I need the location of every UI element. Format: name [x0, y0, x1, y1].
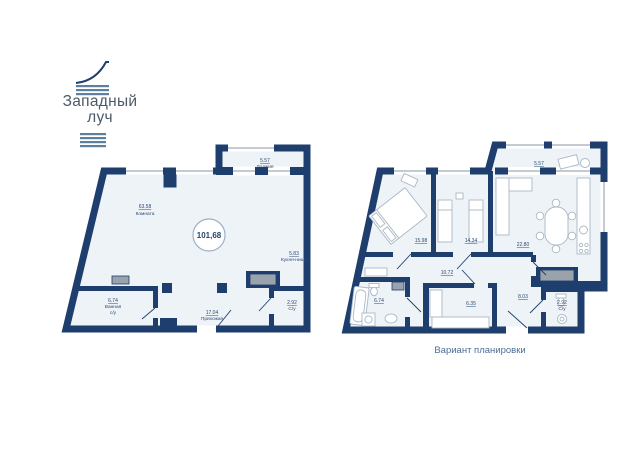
- logo-title-line2: луч: [40, 110, 160, 126]
- storage-area: 6.35: [466, 301, 476, 307]
- corridor-area: 10.72: [441, 270, 454, 276]
- logo-title: Западный луч: [40, 94, 160, 126]
- room-area: 63.58: [139, 204, 152, 210]
- total-area-badge: 101,68: [193, 219, 225, 251]
- hallway-area: 17.04: [206, 310, 219, 316]
- hallway-name: Прихожая: [201, 316, 224, 322]
- variant-caption: Вариант планировки: [395, 345, 565, 356]
- logo-title-line1: Западный: [40, 94, 160, 110]
- wc-name: С/у: [288, 306, 296, 312]
- left-plan-walls: [66, 148, 307, 331]
- bedroom1-area: 15.98: [415, 238, 428, 244]
- kitchen-counter: [577, 178, 590, 254]
- left-plan: 101,68 63.58 Комната 5.57 Лоджия 5.83 Ку…: [55, 136, 320, 338]
- kitchen-name: Кухня-ниша: [281, 257, 308, 263]
- wc-area: 2.92: [287, 300, 297, 306]
- bath-name2: с/у: [110, 310, 117, 316]
- loggia-area: 5.57: [534, 161, 544, 167]
- logo-mark-icon: [72, 58, 116, 98]
- sink-bathroom: [385, 314, 397, 323]
- bathroom-area: 6.74: [374, 298, 384, 304]
- bath-area: 6.74: [108, 298, 118, 304]
- wc-area: 2.92: [557, 300, 567, 306]
- washing-machine: [362, 313, 375, 326]
- loggia-area: 5.57: [260, 158, 270, 164]
- room-name: Комната: [136, 211, 155, 217]
- living-area: 22.80: [517, 242, 530, 248]
- wc-name: С/у: [558, 306, 566, 312]
- hall-area: 8.03: [518, 294, 528, 300]
- kitchen-area: 5.83: [289, 251, 299, 257]
- right-plan: 15.98 14.34 22.80 5.57 10.72 6.74 6.35 8…: [330, 136, 620, 348]
- loggia-name: Лоджия: [257, 164, 274, 170]
- floorplan-page: Западный луч: [0, 0, 639, 452]
- total-area-value: 101,68: [197, 231, 222, 240]
- bedroom2-area: 14.34: [465, 238, 478, 244]
- bath-name: Ванная: [105, 304, 122, 310]
